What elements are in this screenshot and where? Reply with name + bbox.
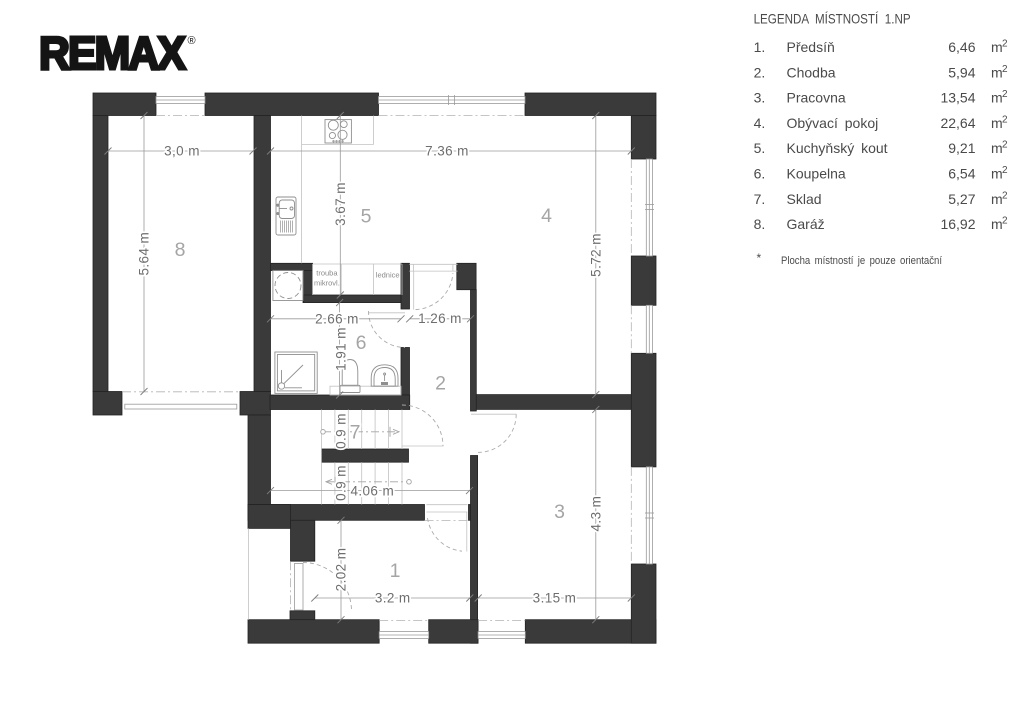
svg-text:4.06 m: 4.06 m: [350, 483, 394, 498]
svg-text:®: ®: [188, 35, 196, 47]
svg-text:1.91 m: 1.91 m: [334, 327, 349, 371]
svg-text:m: m: [991, 140, 1003, 156]
svg-text:2.02 m: 2.02 m: [334, 548, 349, 592]
svg-text:3.: 3.: [754, 90, 766, 106]
svg-text:7.36 m: 7.36 m: [425, 144, 469, 159]
svg-text:3.15 m: 3.15 m: [533, 591, 577, 606]
svg-text:2: 2: [1002, 64, 1008, 75]
svg-text:3.2 m: 3.2 m: [375, 591, 411, 606]
svg-text:4.: 4.: [754, 115, 766, 131]
svg-text:LEGENDA MÍSTNOSTÍ 1.NP: LEGENDA MÍSTNOSTÍ 1.NP: [754, 11, 911, 27]
svg-text:m: m: [991, 115, 1003, 131]
svg-text:m: m: [991, 90, 1003, 106]
svg-text:1: 1: [390, 560, 401, 582]
svg-text:0.9 m: 0.9 m: [334, 413, 349, 449]
svg-text:4: 4: [541, 205, 552, 227]
svg-text:3,0 m: 3,0 m: [164, 144, 200, 159]
svg-text:4.3 m: 4.3 m: [589, 496, 604, 532]
svg-text:3.67 m: 3.67 m: [333, 182, 348, 226]
svg-text:5.64 m: 5.64 m: [137, 232, 152, 276]
svg-text:2: 2: [1002, 39, 1008, 50]
svg-text:2: 2: [1002, 140, 1008, 151]
svg-text:Chodba: Chodba: [787, 64, 836, 80]
svg-text:1.: 1.: [754, 39, 766, 55]
svg-text:13,54: 13,54: [940, 90, 975, 106]
svg-text:0.9 m: 0.9 m: [334, 465, 349, 501]
svg-text:2: 2: [435, 373, 446, 395]
svg-text:m: m: [991, 39, 1003, 55]
svg-text:5,94: 5,94: [948, 64, 975, 80]
svg-text:m: m: [991, 64, 1003, 80]
svg-text:6,46: 6,46: [948, 39, 975, 55]
svg-text:Sklad: Sklad: [787, 191, 822, 207]
svg-text:2: 2: [1002, 114, 1008, 125]
svg-text:5,27: 5,27: [948, 191, 975, 207]
svg-text:mikrovl.: mikrovl.: [314, 279, 340, 288]
svg-text:2.66 m: 2.66 m: [315, 312, 359, 327]
svg-text:3: 3: [554, 501, 565, 523]
svg-text:2: 2: [1002, 190, 1008, 201]
svg-text:Plocha místností je pouze orie: Plocha místností je pouze orientační: [781, 255, 942, 267]
svg-text:2: 2: [1002, 89, 1008, 100]
svg-text:m: m: [991, 216, 1003, 232]
svg-text:9,21: 9,21: [948, 140, 975, 156]
svg-text:Obývací pokoj: Obývací pokoj: [787, 115, 879, 131]
svg-text:lednice: lednice: [376, 271, 400, 280]
svg-text:6.: 6.: [754, 166, 766, 182]
svg-text:2: 2: [1002, 165, 1008, 176]
svg-text:Pracovna: Pracovna: [787, 90, 846, 106]
svg-text:5: 5: [361, 206, 372, 228]
svg-text:5.: 5.: [754, 140, 766, 156]
svg-text:REMAX: REMAX: [39, 27, 186, 79]
svg-text:m: m: [991, 166, 1003, 182]
svg-text:7: 7: [350, 422, 361, 444]
svg-text:*: *: [757, 251, 762, 265]
svg-text:5.72 m: 5.72 m: [589, 233, 604, 277]
svg-text:7.: 7.: [754, 191, 766, 207]
svg-text:Kuchyňský kout: Kuchyňský kout: [787, 140, 888, 156]
svg-text:2.: 2.: [754, 64, 766, 80]
svg-text:trouba: trouba: [316, 269, 338, 278]
svg-text:6: 6: [356, 332, 367, 354]
svg-text:1.26 m: 1.26 m: [418, 311, 462, 326]
svg-text:8.: 8.: [754, 216, 766, 232]
svg-text:Garáž: Garáž: [787, 216, 825, 232]
svg-text:Předsíň: Předsíň: [787, 39, 835, 55]
svg-text:8: 8: [175, 239, 186, 261]
svg-text:2: 2: [1002, 216, 1008, 227]
svg-text:22,64: 22,64: [940, 115, 975, 131]
svg-text:16,92: 16,92: [940, 216, 975, 232]
svg-text:6,54: 6,54: [948, 166, 975, 182]
svg-text:m: m: [991, 191, 1003, 207]
svg-text:Koupelna: Koupelna: [787, 166, 846, 182]
